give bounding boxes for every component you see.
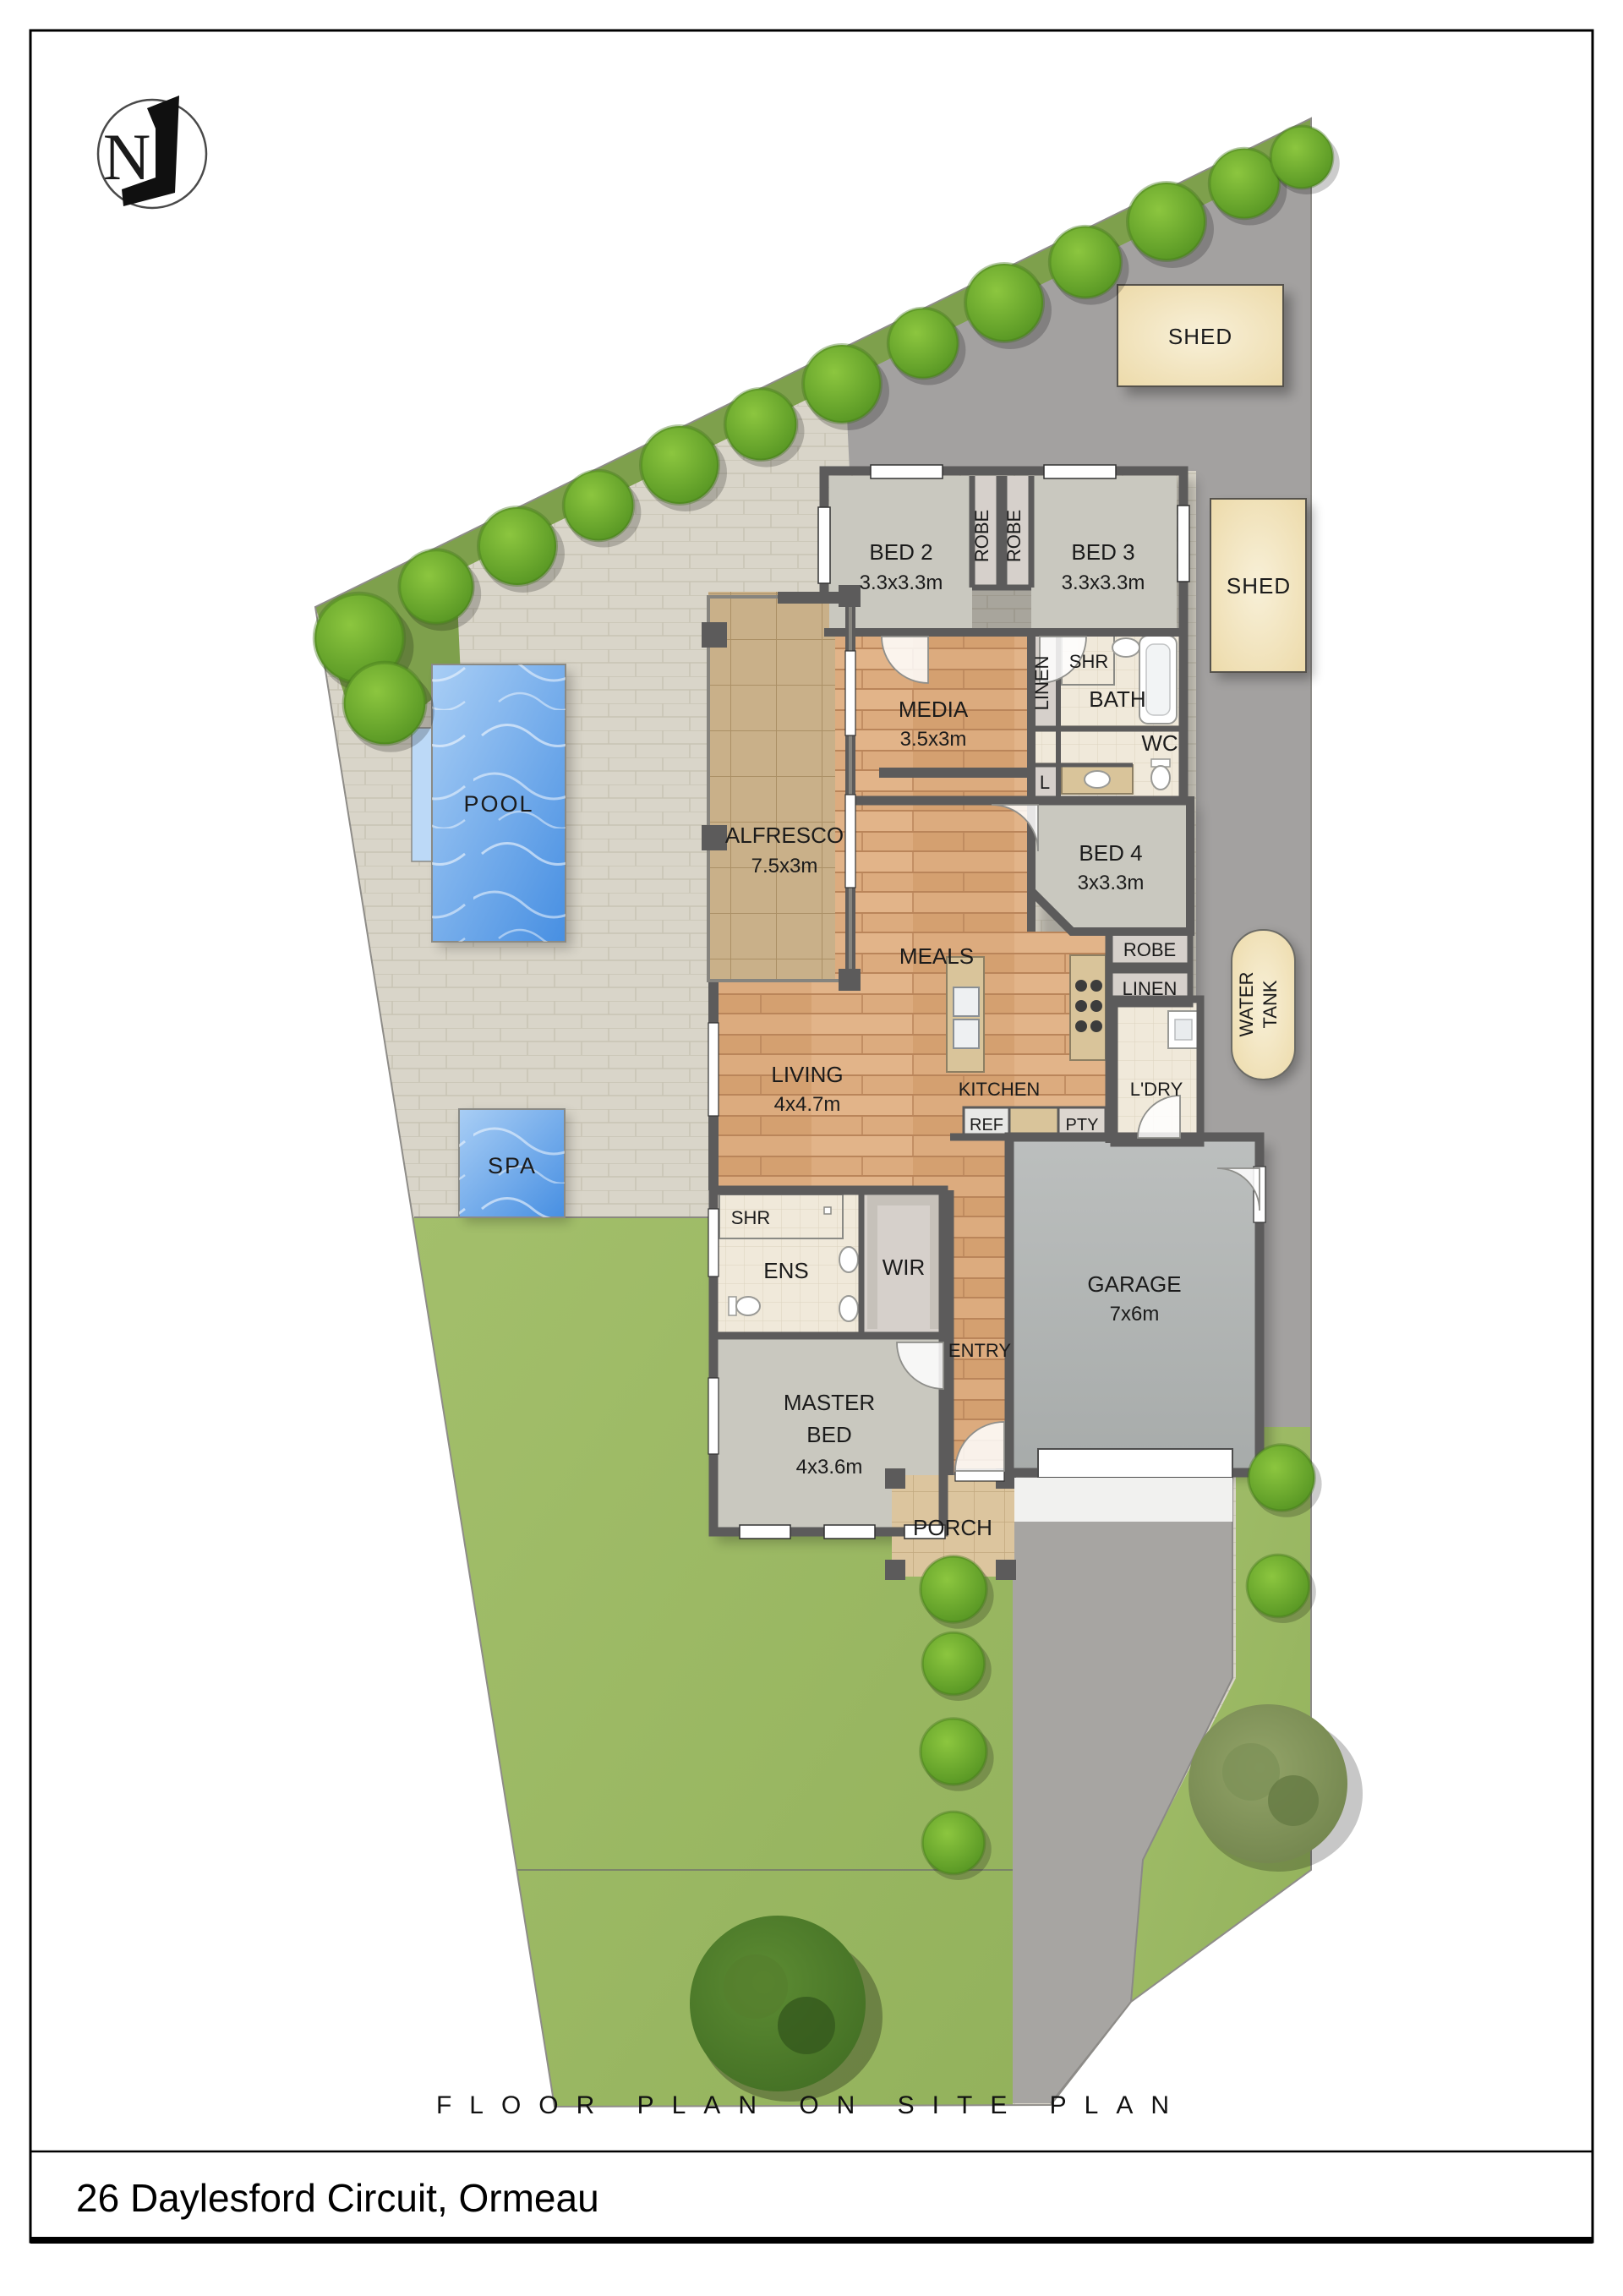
label-ens: ENS <box>763 1258 808 1283</box>
alfresco-post-2 <box>702 825 727 850</box>
label-bath: BATH <box>1089 686 1145 712</box>
toilet-ens-icon <box>729 1297 760 1315</box>
label-bed2: BED 2 <box>869 539 932 565</box>
label-alfresco: ALFRESCO <box>725 823 844 848</box>
label-robe-bed4: ROBE <box>1123 939 1176 960</box>
label-pty: PTY <box>1066 1116 1099 1134</box>
bath-basin-icon <box>1112 638 1139 657</box>
label-shr-bath: SHR <box>1069 651 1108 672</box>
label-kitchen: KITCHEN <box>959 1079 1041 1100</box>
label-ref: REF <box>970 1116 1003 1134</box>
room-alfresco-floor <box>708 592 850 981</box>
shed2-label: SHED <box>1227 573 1291 599</box>
shed1-label: SHED <box>1168 324 1232 349</box>
label-garage: GARAGE <box>1087 1271 1181 1297</box>
porch-pillar-3 <box>885 1560 905 1580</box>
alfresco-post-4 <box>839 969 861 991</box>
label-entry: ENTRY <box>948 1340 1011 1361</box>
spa-label: SPA <box>488 1153 537 1178</box>
label-living-dims: 4x4.7m <box>774 1093 841 1116</box>
laundry-tub-inner <box>1175 1020 1192 1040</box>
water-tank-label-1: WATER <box>1236 972 1257 1037</box>
plan-title: FLOOR PLAN ON SITE PLAN <box>436 2091 1187 2119</box>
label-robe-bed2: ROBE <box>971 510 992 562</box>
label-wir: WIR <box>883 1255 926 1280</box>
pool-label: POOL <box>463 791 533 817</box>
porch-pillar-4 <box>996 1560 1016 1580</box>
label-ldry: L'DRY <box>1130 1079 1183 1100</box>
floor-plan-page: N POOL SPA SHED <box>0 0 1623 2296</box>
address-text: 26 Daylesford Circuit, Ormeau <box>76 2176 599 2220</box>
label-living: LIVING <box>771 1062 843 1087</box>
label-bed2-dims: 3.3x3.3m <box>860 571 943 594</box>
label-master-2: BED <box>806 1422 851 1447</box>
toilet-wc-icon <box>1151 759 1170 790</box>
label-alfresco-dims: 7.5x3m <box>751 855 818 877</box>
label-media: MEDIA <box>899 697 969 722</box>
garage-door <box>1038 1449 1232 1478</box>
label-master-1: MASTER <box>784 1390 875 1415</box>
label-garage-dims: 7x6m <box>1110 1303 1160 1326</box>
label-porch: PORCH <box>913 1515 992 1540</box>
alfresco-post-3 <box>839 585 861 607</box>
bathtub-inner <box>1146 644 1170 715</box>
label-shr-ens: SHR <box>731 1207 770 1228</box>
label-media-dims: 3.5x3m <box>900 728 967 751</box>
ens-basin1-icon <box>839 1247 858 1272</box>
label-master-dims: 4x3.6m <box>796 1456 863 1479</box>
water-tank-label-2: TANK <box>1260 980 1281 1028</box>
kitchen-sink2-icon <box>954 1020 979 1048</box>
north-indicator: N <box>98 96 206 208</box>
wc-basin-icon <box>1085 771 1110 788</box>
label-linen-cupboard: L <box>1040 772 1050 793</box>
label-bed4-dims: 3x3.3m <box>1078 872 1145 894</box>
label-meals: MEALS <box>899 943 974 969</box>
garage-apron <box>1014 1478 1232 1522</box>
label-bed3-dims: 3.3x3.3m <box>1062 571 1145 594</box>
label-robe-bed3: ROBE <box>1003 510 1025 562</box>
house: BED 2 3.3x3.3m BED 3 3.3x3.3m ROBE ROBE … <box>702 465 1271 1580</box>
media-meals-wall-stub <box>879 768 1031 778</box>
porch-pillar-1 <box>885 1468 905 1489</box>
ens-basin2-icon <box>839 1296 858 1321</box>
label-bed4: BED 4 <box>1079 840 1142 866</box>
shower-head-icon <box>824 1207 831 1214</box>
kitchen-sink-icon <box>954 987 979 1016</box>
pool-step <box>412 728 432 861</box>
alfresco-post-1 <box>702 622 727 648</box>
label-linen-bath: LINEN <box>1031 656 1052 711</box>
label-linen-hall: LINEN <box>1123 978 1178 999</box>
label-bed3: BED 3 <box>1071 539 1134 565</box>
label-wc: WC <box>1141 730 1178 756</box>
room-living-lower-floor <box>715 1143 950 1190</box>
